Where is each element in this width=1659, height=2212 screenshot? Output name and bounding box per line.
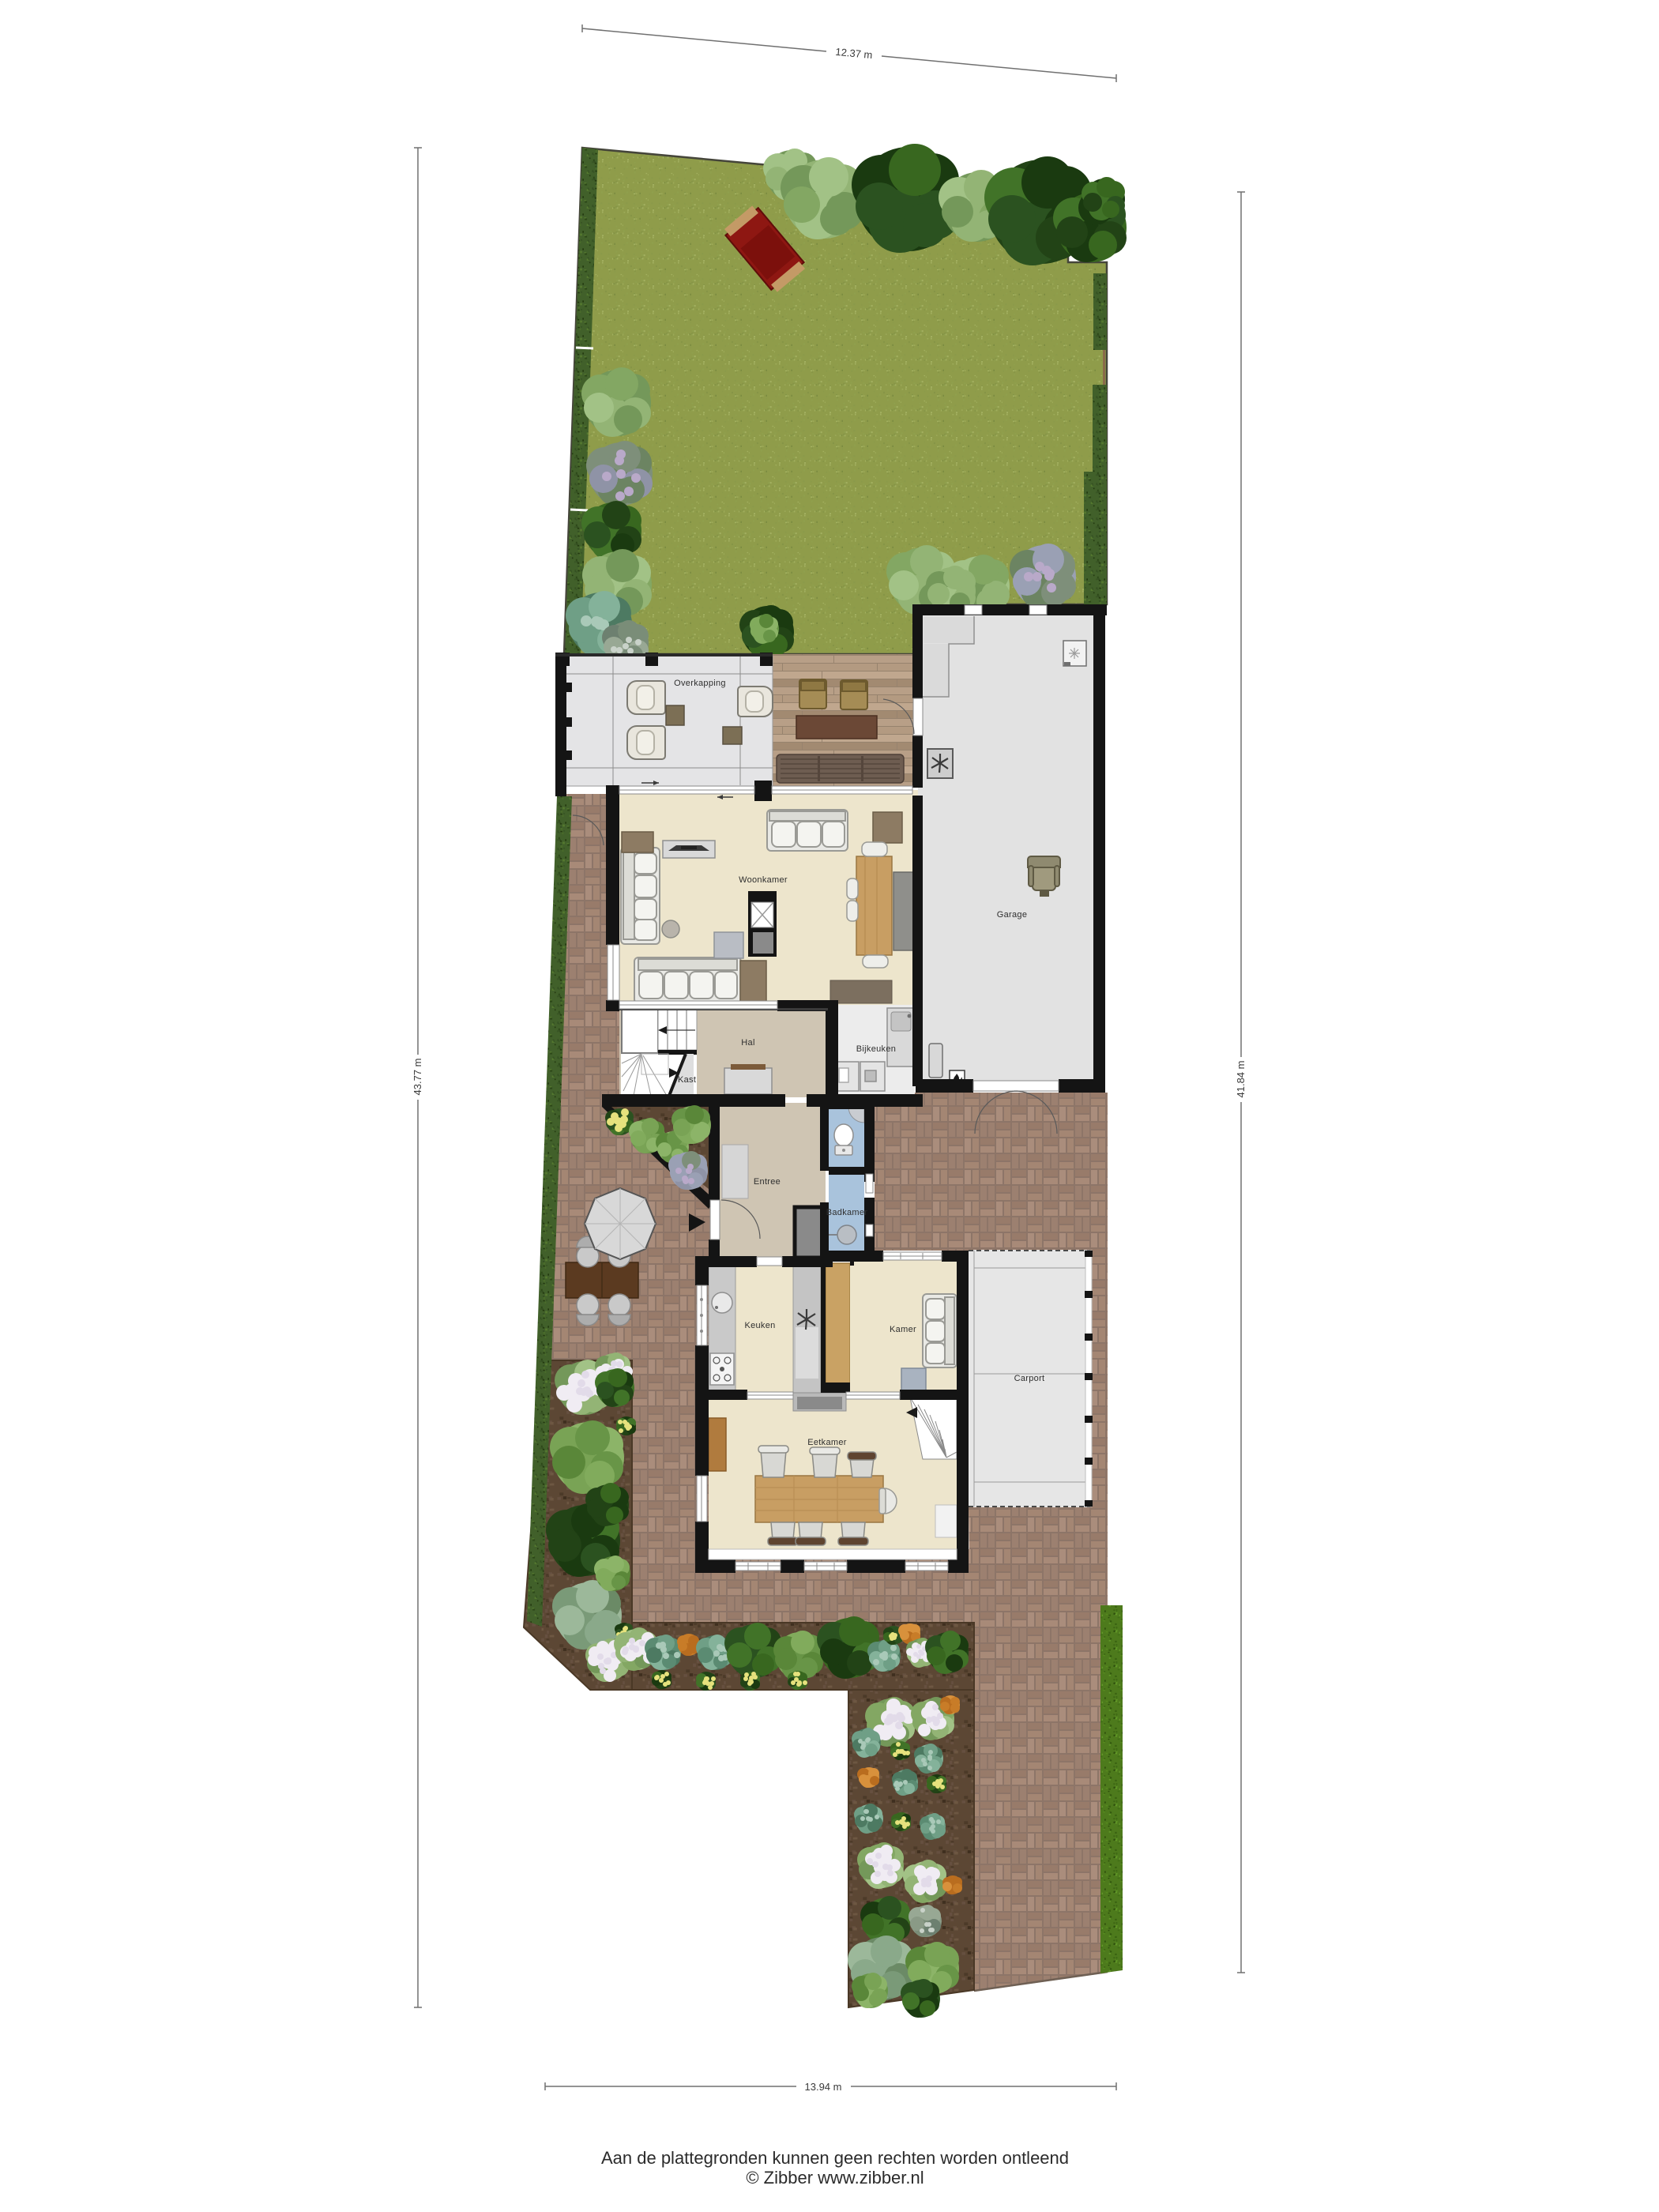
svg-text:Garage: Garage [997,910,1028,920]
svg-text:Kamer: Kamer [890,1325,916,1334]
svg-text:Badkamer: Badkamer [826,1208,868,1217]
svg-text:© Zibber www.zibber.nl: © Zibber www.zibber.nl [746,2168,924,2188]
svg-text:Woonkamer: Woonkamer [739,875,788,885]
svg-text:Hal: Hal [741,1038,754,1048]
svg-text:Overkapping: Overkapping [674,679,726,688]
svg-text:43.77 m: 43.77 m [412,1059,423,1096]
svg-text:Eetkamer: Eetkamer [807,1438,847,1447]
svg-text:13.94 m: 13.94 m [805,2081,842,2093]
svg-text:41.84 m: 41.84 m [1235,1061,1247,1098]
svg-text:Kast: Kast [678,1075,696,1085]
svg-text:Carport: Carport [1014,1374,1045,1383]
svg-text:Aan de plattegronden kunnen ge: Aan de plattegronden kunnen geen rechten… [601,2148,1069,2168]
svg-text:Keuken: Keuken [744,1321,775,1330]
svg-text:Entree: Entree [754,1177,781,1187]
svg-text:Bijkeuken: Bijkeuken [856,1044,896,1054]
